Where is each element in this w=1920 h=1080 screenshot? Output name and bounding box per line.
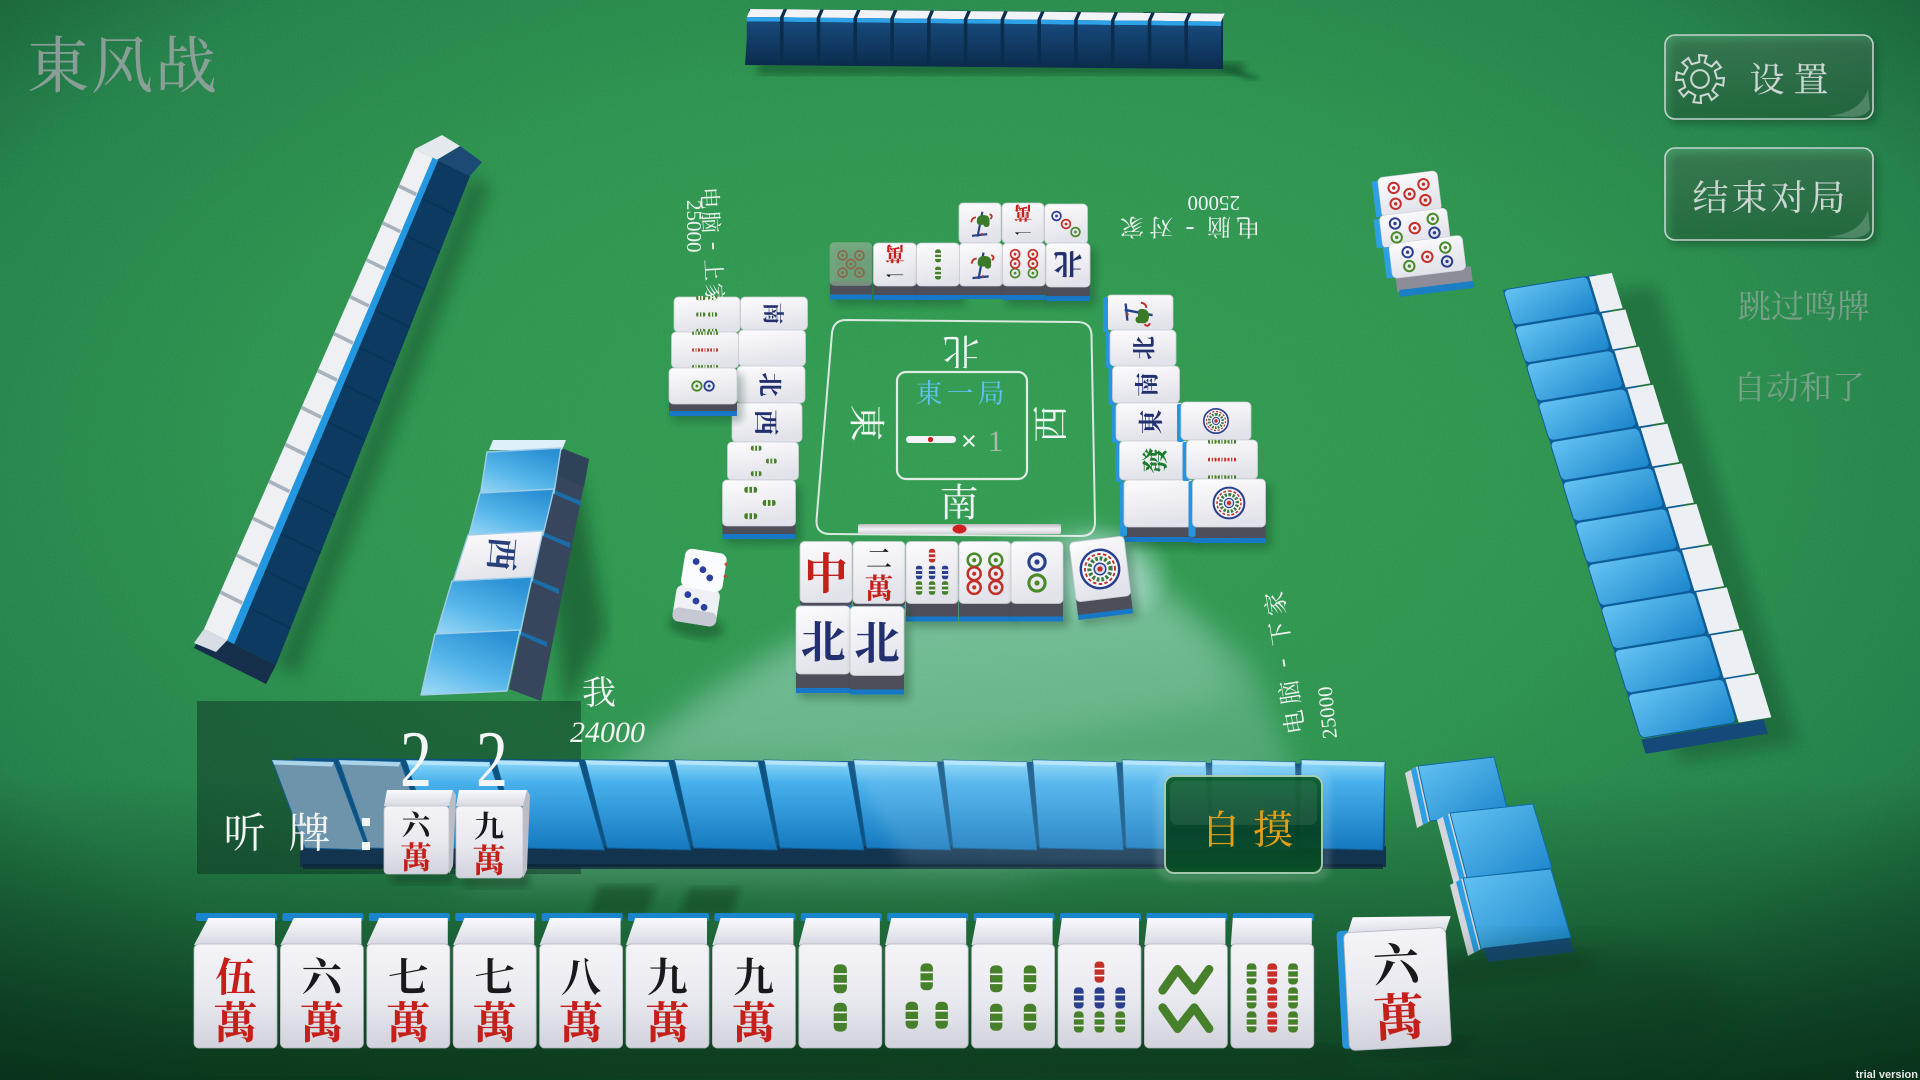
svg-text:1: 1 [988, 425, 1003, 458]
svg-text:25000: 25000 [1188, 191, 1241, 215]
svg-text:2: 2 [476, 714, 508, 803]
svg-text:trial version: trial version [1856, 1069, 1919, 1080]
svg-text:×: × [961, 426, 977, 456]
svg-text:2: 2 [400, 714, 432, 803]
svg-text:24000: 24000 [570, 716, 645, 749]
svg-text:25000: 25000 [682, 200, 706, 253]
